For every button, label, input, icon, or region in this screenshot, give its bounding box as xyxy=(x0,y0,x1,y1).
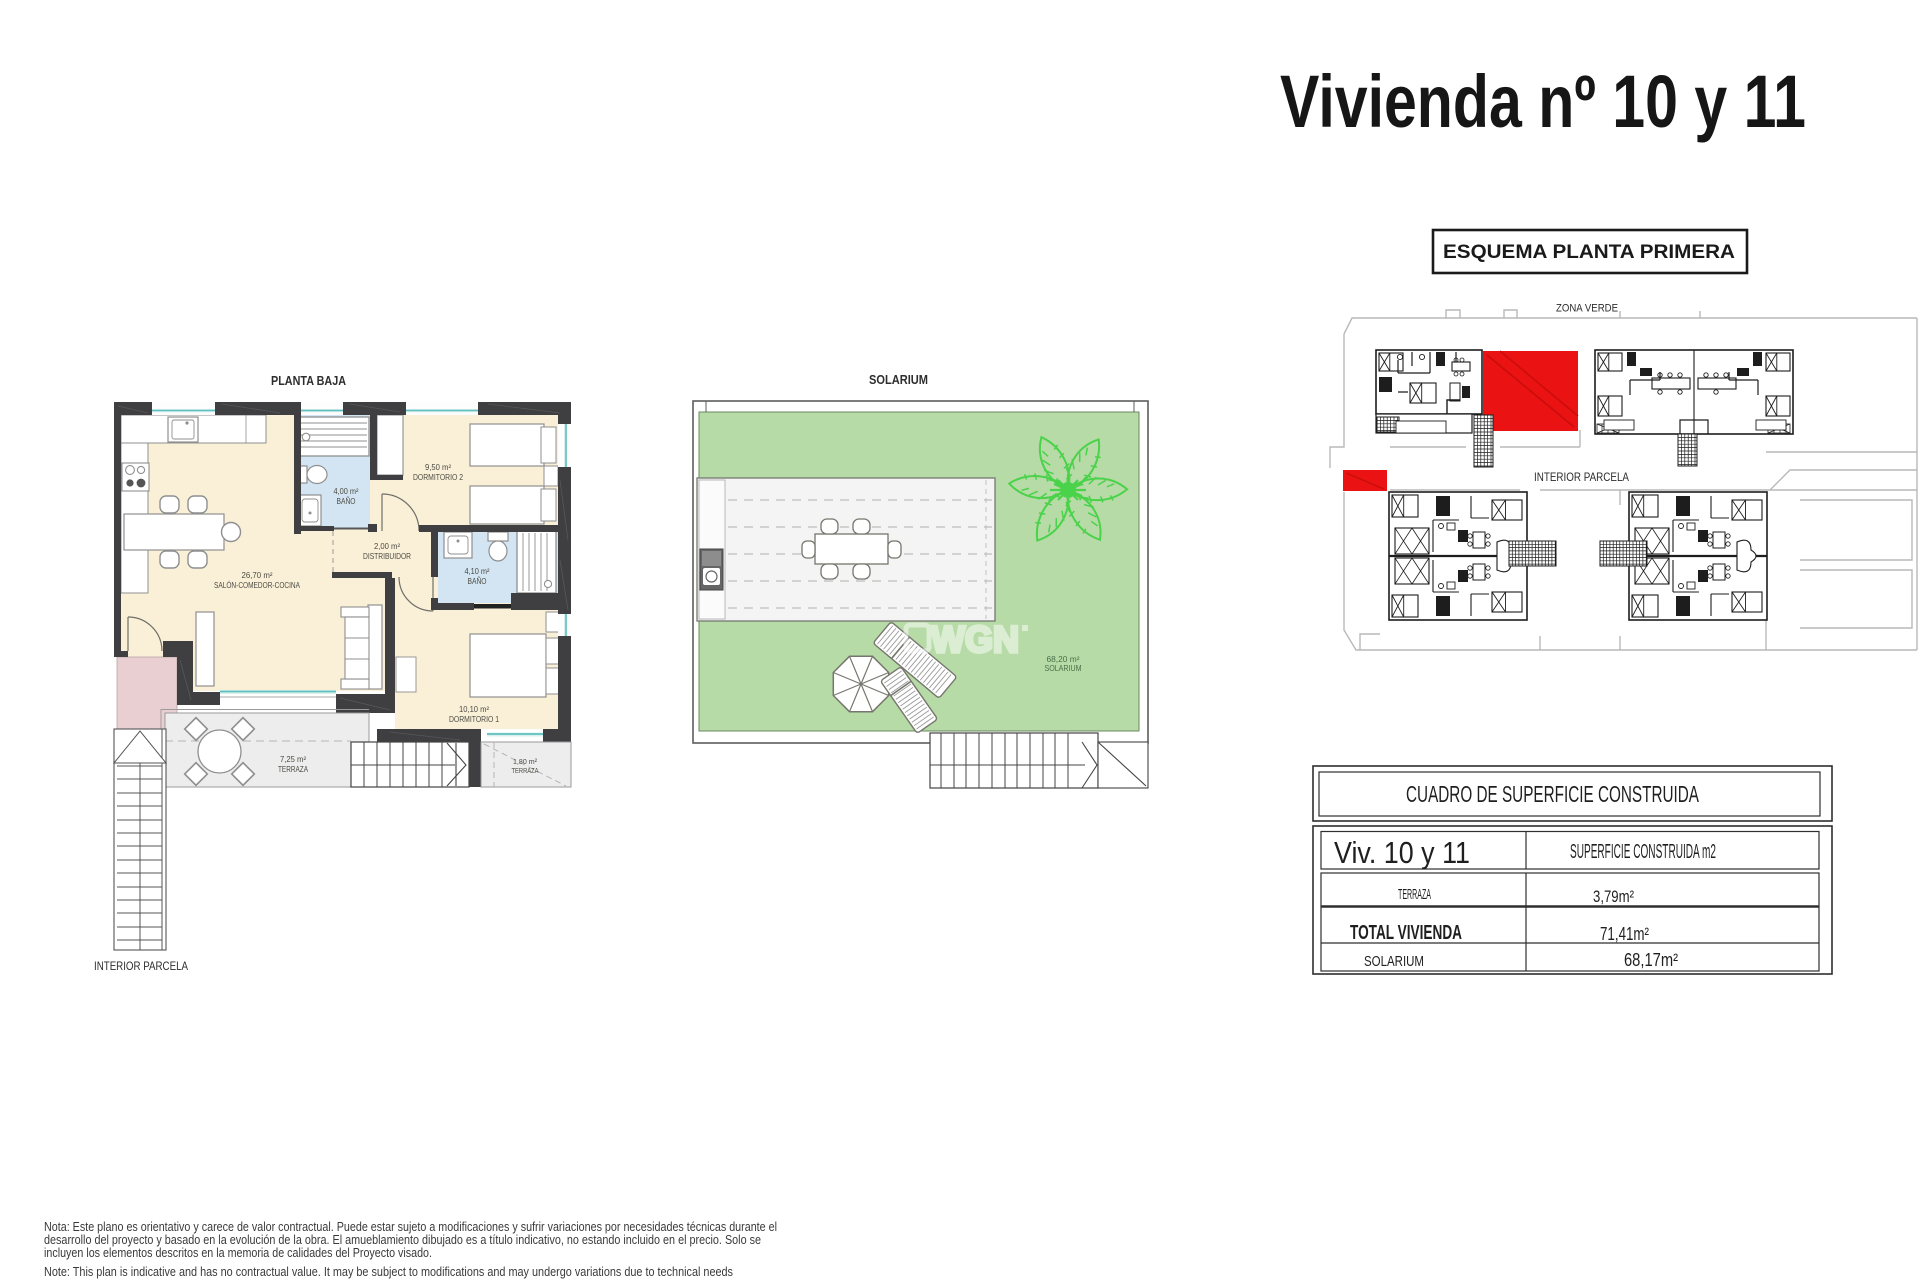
svg-text:SOLARIUM: SOLARIUM xyxy=(1045,664,1082,673)
svg-text:SOLARIUM: SOLARIUM xyxy=(1364,953,1424,970)
svg-text:CUADRO DE SUPERFICIE CONSTRUID: CUADRO DE SUPERFICIE CONSTRUIDA xyxy=(1406,781,1699,807)
svg-text:DISTRIBUIDOR: DISTRIBUIDOR xyxy=(363,552,411,561)
svg-text:BAÑO: BAÑO xyxy=(337,496,356,506)
svg-text:7,25 m²: 7,25 m² xyxy=(280,755,306,764)
svg-text:incluyen los elementos descrit: incluyen los elementos descritos en la m… xyxy=(44,1246,432,1260)
svg-text:68,17m²: 68,17m² xyxy=(1624,950,1678,970)
svg-text:4,10 m²: 4,10 m² xyxy=(465,567,490,576)
svg-text:WGN: WGN xyxy=(931,619,1019,660)
svg-text:DORMITORIO 1: DORMITORIO 1 xyxy=(449,715,499,724)
svg-text:TOTAL VIVIENDA: TOTAL VIVIENDA xyxy=(1350,922,1462,944)
svg-text:71,41m²: 71,41m² xyxy=(1600,924,1649,944)
svg-text:SUPERFICIE CONSTRUIDA m2: SUPERFICIE CONSTRUIDA m2 xyxy=(1570,841,1716,863)
svg-text:TERRAZA: TERRAZA xyxy=(512,766,540,775)
svg-text:9,50 m²: 9,50 m² xyxy=(425,463,451,472)
svg-text:INTERIOR PARCELA: INTERIOR PARCELA xyxy=(1534,470,1629,484)
svg-text:DORMITORIO 2: DORMITORIO 2 xyxy=(413,473,463,482)
svg-text:1,80 m²: 1,80 m² xyxy=(513,757,537,766)
svg-text:PLANTA BAJA: PLANTA BAJA xyxy=(271,373,347,388)
svg-text:4,00 m²: 4,00 m² xyxy=(334,487,359,496)
svg-text:INTERIOR PARCELA: INTERIOR PARCELA xyxy=(94,961,188,973)
svg-text:Viv. 10 y 11: Viv. 10 y 11 xyxy=(1334,835,1470,870)
svg-text:desarrollo del proyecto y basa: desarrollo del proyecto y basado en la e… xyxy=(44,1233,761,1247)
svg-text:BAÑO: BAÑO xyxy=(468,576,487,586)
svg-text:Note: This plan is indicative: Note: This plan is indicative and has no… xyxy=(44,1265,733,1279)
svg-text:ZONA VERDE: ZONA VERDE xyxy=(1556,303,1618,315)
svg-text:26,70 m²: 26,70 m² xyxy=(242,571,273,580)
svg-text:10,10 m²: 10,10 m² xyxy=(459,705,489,714)
svg-text:Vivienda nº 10 y 11: Vivienda nº 10 y 11 xyxy=(1280,60,1806,143)
svg-text:3,79m²: 3,79m² xyxy=(1593,887,1634,906)
svg-text:TERRAZA: TERRAZA xyxy=(1398,887,1431,903)
svg-text:SOLARIUM: SOLARIUM xyxy=(869,372,928,387)
svg-text:SALÓN-COMEDOR-COCINA: SALÓN-COMEDOR-COCINA xyxy=(214,580,300,590)
svg-text:68,20 m²: 68,20 m² xyxy=(1047,655,1080,664)
svg-text:Nota: Este plano es orientativ: Nota: Este plano es orientativo y carece… xyxy=(44,1220,777,1234)
svg-text:TERRAZA: TERRAZA xyxy=(278,765,308,774)
svg-text:2,00 m²: 2,00 m² xyxy=(374,542,400,551)
svg-text:ESQUEMA PLANTA PRIMERA: ESQUEMA PLANTA PRIMERA xyxy=(1443,241,1735,263)
